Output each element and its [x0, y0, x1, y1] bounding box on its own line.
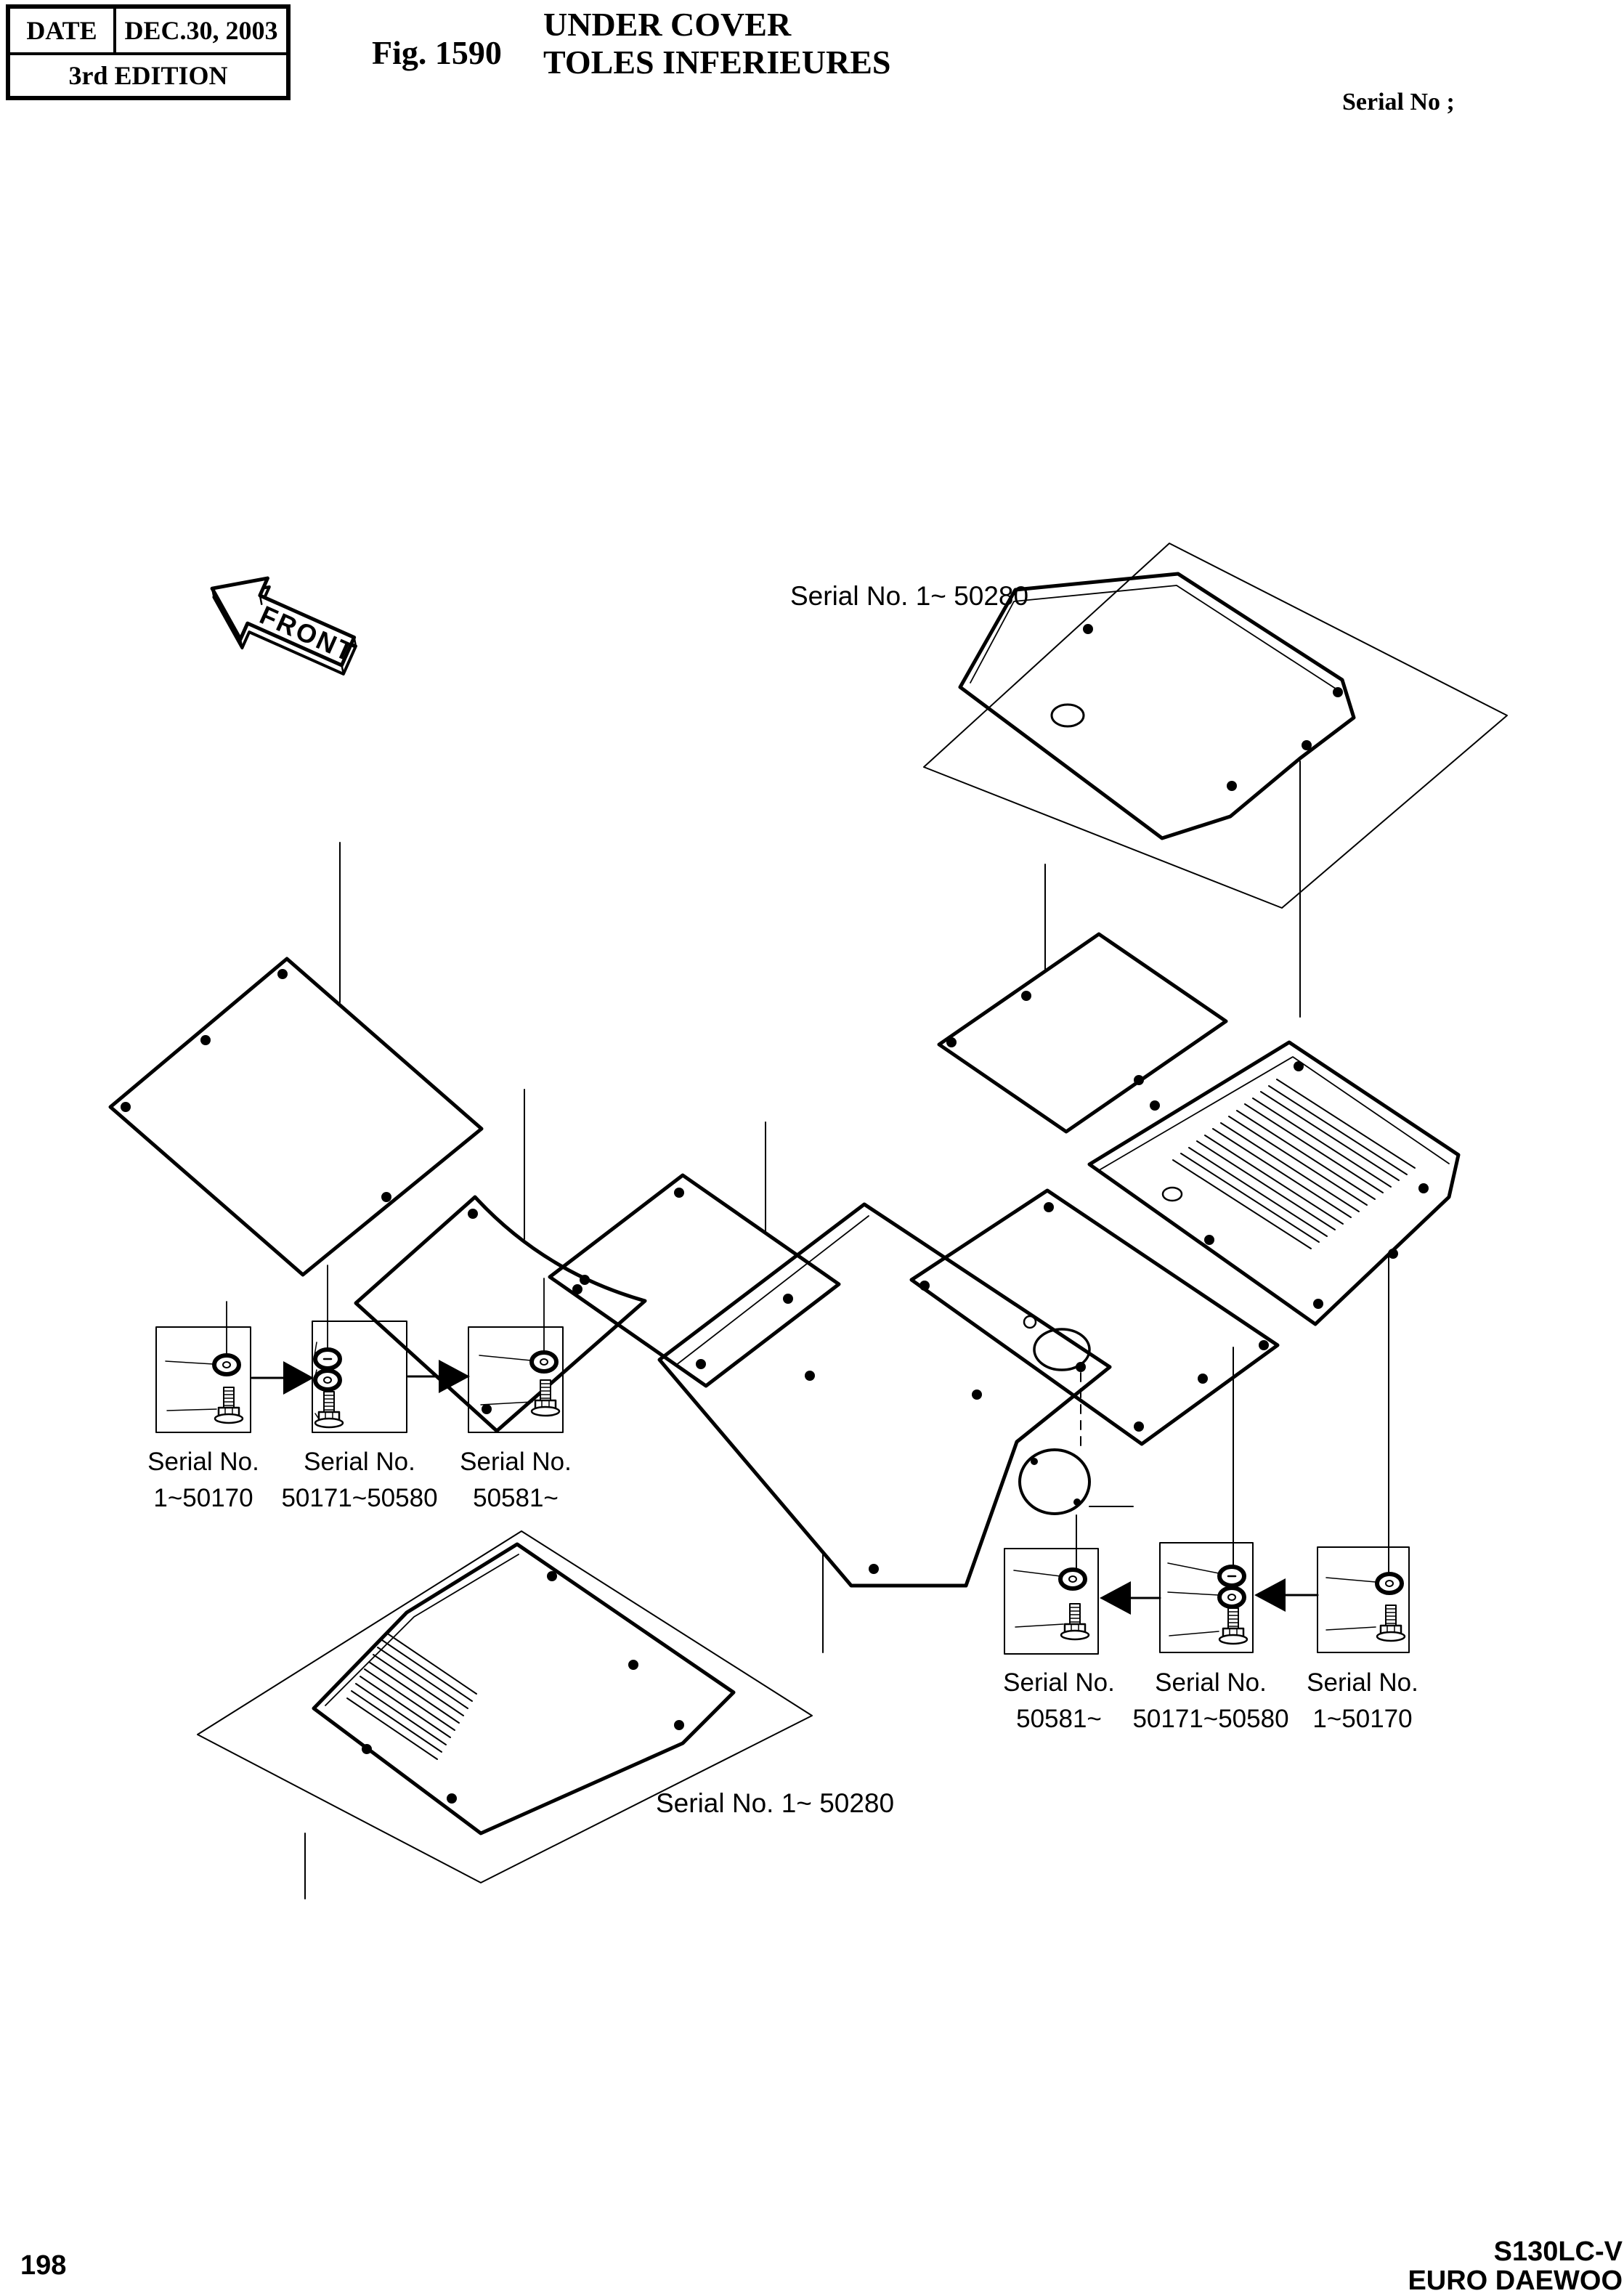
oval-cover-plate: [1020, 1450, 1133, 1573]
middle-plate-group: [110, 843, 1458, 1652]
plate-2-holes: [468, 1209, 582, 1414]
right-hardware-boxes: [1004, 1543, 1409, 1654]
plate-7: [659, 1204, 1110, 1586]
plate-4: [912, 1190, 1278, 1444]
right-box-3-label-line2: 1~50170: [1246, 1701, 1479, 1737]
right-box-2-hardware: [1168, 1563, 1247, 1644]
page-number: 198: [20, 2250, 66, 2281]
top-under-cover-plate: [960, 574, 1354, 838]
bottom-plate-flange-line: [325, 1554, 519, 1705]
plate-6: [1089, 1042, 1458, 1324]
plate-7-holes: [805, 1371, 982, 1574]
left-box-3-label-line2: 50581~: [399, 1480, 632, 1517]
right-box-1-hardware: [1014, 1570, 1089, 1639]
front-arrow: FRONT: [195, 559, 368, 691]
bottom-serial-label: Serial No. 1~ 50280: [656, 1788, 894, 1819]
top-serial-label: Serial No. 1~ 50280: [790, 581, 1028, 612]
footer-model-block: S130LC-V EURO DAEWOO: [1408, 2237, 1623, 2295]
brand-name: EURO DAEWOO: [1408, 2266, 1623, 2295]
left-box-3-label: Serial No. 50581~: [399, 1444, 632, 1517]
left-arrow-1: [252, 1361, 314, 1395]
right-arrow-2: [1254, 1578, 1318, 1612]
plate-5: [939, 934, 1226, 1132]
plate-6-oval-hole: [1163, 1188, 1182, 1201]
model-code: S130LC-V: [1408, 2237, 1623, 2266]
plate-6-vent-slots: [1173, 1079, 1415, 1249]
plate-1: [110, 959, 482, 1275]
right-box-3-hardware: [1326, 1574, 1405, 1641]
left-box-3-hardware: [479, 1352, 559, 1416]
plate-1-holes: [121, 969, 391, 1202]
right-arrow-1: [1100, 1581, 1160, 1615]
bottom-plate-holes: [362, 1571, 684, 1804]
left-box-3-label-line1: Serial No.: [399, 1444, 632, 1480]
plate-4-holes: [919, 1202, 1269, 1432]
exploded-view-drawing: FRONT: [0, 0, 1624, 2295]
oval-cover-holes: [1031, 1458, 1081, 1506]
bottom-cover-assembly: [198, 1531, 812, 1899]
top-plate-access-hole: [1052, 705, 1084, 726]
top-plate-bolt-holes: [1083, 624, 1343, 791]
right-box-3-label-line1: Serial No.: [1246, 1665, 1479, 1701]
left-arrow-2: [408, 1360, 470, 1393]
left-hardware-boxes: [156, 1265, 563, 1432]
left-box-1-hardware: [166, 1355, 243, 1423]
right-box-3-label: Serial No. 1~50170: [1246, 1665, 1479, 1737]
left-box-2-hardware: [314, 1342, 343, 1427]
top-cover-assembly: [924, 543, 1507, 1017]
